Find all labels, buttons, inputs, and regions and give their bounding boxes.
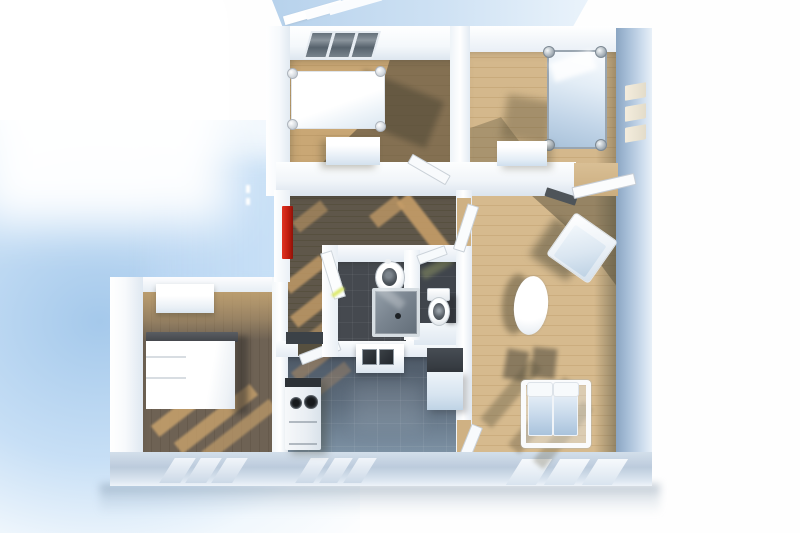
bed-tl-post-tr [375, 66, 386, 77]
bed-tr-post-br [595, 139, 607, 151]
toilet-seat-opening [433, 303, 445, 320]
background-highlight-dash-2 [246, 198, 250, 205]
background-highlight-dash-1 [246, 185, 250, 193]
stove-burner-2 [304, 395, 318, 409]
building-ground-shadow [100, 484, 660, 514]
stove-backsplash [285, 378, 321, 387]
bed-left-sheet-line-1 [146, 356, 186, 358]
desk-bedroom-tl [326, 137, 380, 165]
shower-drain [395, 313, 401, 319]
fridge-counter-front [427, 372, 463, 410]
wardrobe-bedroom-left [156, 284, 214, 313]
bed-tr-post-tr [595, 46, 607, 58]
bed-left-mattress [146, 341, 235, 409]
wall-left-exterior [110, 277, 143, 457]
bathroom-sink-faucet [385, 259, 391, 264]
bed-tr-post-tl [543, 46, 555, 58]
desk-bedroom-tr [497, 141, 547, 166]
kitchen-light-wedge [352, 384, 422, 430]
fridge-counter-top [427, 348, 463, 372]
bed-tl-mattress [291, 71, 385, 129]
bed-left-sheet-line-2 [146, 377, 186, 379]
oven-door-line-1 [289, 421, 317, 423]
bed-tl-post-bl [287, 119, 298, 130]
sofa-pillow-2 [553, 382, 579, 397]
bathroom-sink-bowl [382, 268, 397, 286]
oven-door-line-2 [289, 443, 317, 445]
bg-white-light-block [0, 0, 230, 225]
stove [285, 378, 321, 450]
sofa-cushion-1 [528, 392, 553, 436]
kitchen-sink-basin-1 [362, 349, 377, 365]
kitchen-counter-dark-top [286, 332, 323, 344]
floorplan-canvas [0, 0, 800, 533]
wall-wc-south [414, 323, 462, 345]
bed-tl-post-br [375, 121, 386, 132]
radiator-red [282, 206, 293, 259]
bed-left-shadow [234, 336, 248, 414]
kitchen-sink-basin-2 [379, 349, 394, 365]
stove-burner-1 [290, 397, 302, 409]
bed-tl-post-tl [287, 68, 298, 79]
wall-bathroom-top [322, 245, 470, 262]
sofa-pillow-1 [527, 382, 553, 397]
sofa-cushion-2 [553, 392, 578, 436]
